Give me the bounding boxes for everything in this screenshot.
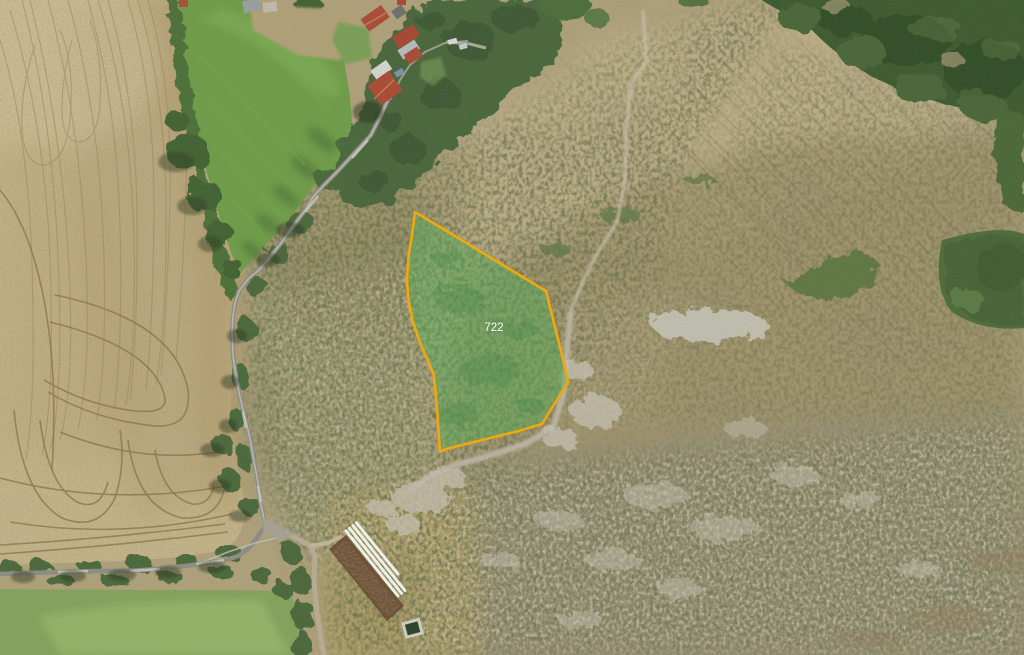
svg-text:722: 722: [484, 322, 503, 334]
